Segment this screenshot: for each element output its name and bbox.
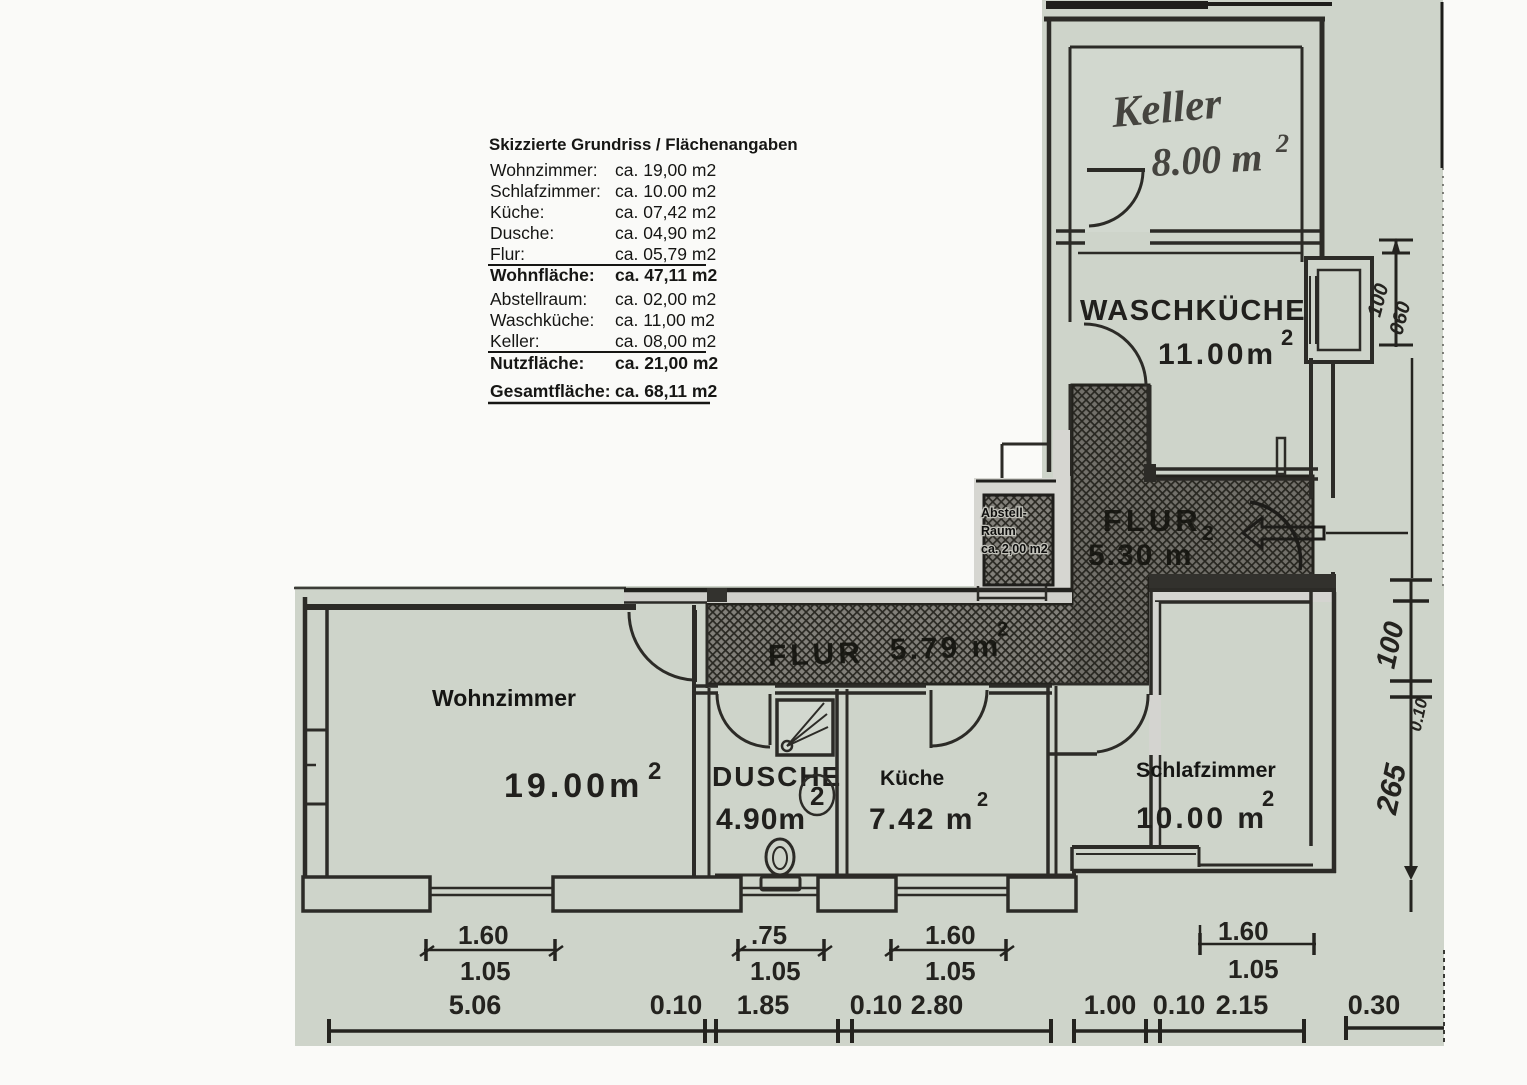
svg-text:2: 2 [810, 781, 824, 811]
svg-text:Wohnfläche:: Wohnfläche: [490, 265, 595, 285]
svg-text:11.00m: 11.00m [1158, 338, 1276, 371]
svg-text:Wohnzimmer: Wohnzimmer [432, 685, 576, 711]
svg-text:ca. 21,00 m2: ca. 21,00 m2 [615, 353, 718, 373]
svg-text:Schlafzimmer:: Schlafzimmer: [490, 181, 601, 201]
svg-text:.75: .75 [751, 920, 787, 950]
svg-text:ca. 47,11 m2: ca. 47,11 m2 [615, 265, 717, 285]
svg-text:Küche:: Küche: [490, 202, 544, 222]
svg-text:2.80: 2.80 [911, 990, 964, 1020]
svg-text:1.00: 1.00 [1084, 990, 1137, 1020]
svg-text:1.60: 1.60 [458, 920, 509, 950]
svg-text:ca. 04,90 m2: ca. 04,90 m2 [615, 223, 716, 243]
svg-text:Abstell-: Abstell- [981, 506, 1027, 520]
svg-text:1.05: 1.05 [750, 956, 801, 986]
svg-text:2: 2 [1275, 129, 1289, 158]
svg-text:2: 2 [977, 789, 988, 811]
svg-text:0.10: 0.10 [850, 990, 903, 1020]
svg-text:0.10: 0.10 [650, 990, 703, 1020]
svg-text:Wohnzimmer:: Wohnzimmer: [490, 160, 598, 180]
svg-text:10.00 m: 10.00 m [1136, 802, 1267, 835]
svg-text:0.30: 0.30 [1348, 990, 1401, 1020]
svg-text:ca. 2,00 m2: ca. 2,00 m2 [981, 542, 1048, 556]
svg-text:19.00m: 19.00m [504, 767, 643, 805]
svg-text:Gesamtfläche:: Gesamtfläche: [490, 381, 611, 401]
svg-text:Küche: Küche [880, 767, 944, 790]
svg-text:2.15: 2.15 [1216, 990, 1269, 1020]
svg-text:ca. 11,00 m2: ca. 11,00 m2 [615, 310, 715, 330]
svg-text:Keller: Keller [1109, 78, 1225, 137]
svg-text:ca. 19,00 m2: ca. 19,00 m2 [615, 160, 716, 180]
svg-text:1.05: 1.05 [1228, 954, 1279, 984]
svg-text:8.00 m: 8.00 m [1150, 134, 1263, 185]
svg-text:ca. 02,00 m2: ca. 02,00 m2 [615, 289, 716, 309]
svg-text:ca. 68,11 m2: ca. 68,11 m2 [615, 381, 717, 401]
svg-text:1.05: 1.05 [925, 956, 976, 986]
svg-text:1.05: 1.05 [460, 956, 511, 986]
svg-text:Abstellraum:: Abstellraum: [490, 289, 587, 309]
svg-text:2: 2 [1281, 325, 1293, 350]
svg-text:2: 2 [1202, 522, 1214, 545]
svg-text:1.60: 1.60 [1218, 916, 1269, 946]
svg-text:FLUR: FLUR [767, 637, 864, 673]
svg-text:Flur:: Flur: [490, 244, 525, 264]
svg-text:2: 2 [1262, 786, 1274, 811]
svg-text:Skizzierte Grundriss / Flächen: Skizzierte Grundriss / Flächenangaben [489, 135, 798, 154]
svg-text:Dusche:: Dusche: [490, 223, 554, 243]
svg-text:ca. 08,00 m2: ca. 08,00 m2 [615, 331, 716, 351]
svg-text:4.90m: 4.90m [716, 803, 806, 836]
svg-text:Waschküche:: Waschküche: [490, 310, 594, 330]
svg-text:ca. 05,79 m2: ca. 05,79 m2 [615, 244, 716, 264]
svg-text:Raum: Raum [981, 524, 1016, 538]
svg-text:5.30 m: 5.30 m [1088, 539, 1193, 572]
svg-text:Nutzfläche:: Nutzfläche: [490, 353, 584, 373]
svg-text:Schlafzimmer: Schlafzimmer [1136, 758, 1276, 782]
svg-text:Keller:: Keller: [490, 331, 540, 351]
svg-text:2: 2 [997, 619, 1009, 641]
svg-text:7.42 m: 7.42 m [869, 803, 974, 836]
svg-text:WASCHKÜCHE: WASCHKÜCHE [1080, 294, 1306, 327]
svg-text:5.06: 5.06 [449, 990, 502, 1020]
svg-text:ca. 07,42 m2: ca. 07,42 m2 [615, 202, 716, 222]
svg-text:FLUR: FLUR [1103, 503, 1202, 538]
svg-text:2: 2 [648, 758, 661, 785]
svg-text:1.85: 1.85 [737, 990, 790, 1020]
svg-text:ca. 10.00 m2: ca. 10.00 m2 [615, 181, 716, 201]
svg-text:0.10: 0.10 [1153, 990, 1206, 1020]
svg-text:5.79 m: 5.79 m [889, 630, 1001, 667]
svg-text:1.60: 1.60 [925, 920, 976, 950]
